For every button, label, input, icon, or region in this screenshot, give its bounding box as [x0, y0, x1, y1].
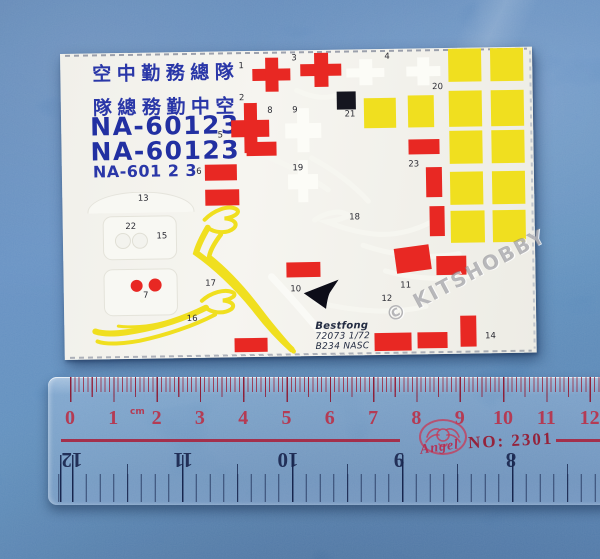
decal-number-label: 13 [138, 194, 149, 204]
decal-number-label: 17 [205, 279, 216, 289]
decal-number-label: 1 [238, 61, 244, 71]
ruler-cm-number: 12 [580, 407, 600, 430]
decal-number-label: 3 [291, 53, 297, 63]
ruler-cm-number: 3 [195, 407, 205, 430]
ruler-cm-number: 1 [108, 407, 118, 430]
ruler-cm-number: 6 [325, 407, 335, 430]
decal-number-label: 9 [292, 105, 298, 115]
decal-number-label: 20 [432, 82, 443, 92]
decal-number-label: 11 [400, 281, 411, 291]
ruler-cm-number: 5 [282, 407, 292, 430]
decal-number-label: 19 [292, 163, 303, 173]
ruler-cm-unit-label: cm [130, 407, 145, 417]
ruler-center-line-left [61, 439, 400, 442]
decal-number-label: 2 [239, 93, 245, 103]
decal-number-label: 15 [156, 231, 167, 241]
ruler-cm-number: 8 [411, 407, 421, 430]
decal-number-label: 18 [349, 212, 360, 222]
decal-number-label: 7 [143, 291, 149, 301]
maker-imprint: Bestfong 72073 1/72 B234 NASC [315, 321, 370, 352]
ruler-cm-ticks [70, 377, 600, 402]
ruler-cm-number: 7 [368, 407, 378, 430]
ruler-center-line-right [556, 439, 600, 442]
decal-number-labels: 1234567891011121314151617181920212223 [60, 47, 537, 360]
ruler-cm-number: 2 [152, 407, 162, 430]
maker-subject: B234 NASC [316, 341, 371, 352]
photo-scene: 空中勤務總隊 隊總務勤中空 NA-60123 NA-60123 NA-601 2… [0, 0, 600, 559]
decal-number-label: 14 [485, 331, 496, 341]
decal-number-label: 10 [290, 284, 301, 294]
ruler: cm 0123456789101112 12111098 Angel NO: 2… [48, 377, 600, 505]
decal-number-label: 23 [408, 159, 419, 169]
ruler-cm-number: 0 [65, 407, 75, 430]
decal-number-label: 16 [187, 314, 198, 324]
decal-number-label: 8 [267, 106, 273, 116]
ruler-cm-number: 4 [238, 407, 248, 430]
ruler-cm-number: 10 [493, 407, 513, 430]
ruler-inch-ticks [48, 455, 600, 502]
ruler-cm-number: 11 [537, 407, 556, 430]
decal-number-label: 21 [344, 109, 355, 119]
decal-number-label: 5 [218, 130, 224, 140]
decal-sheet: 空中勤務總隊 隊總務勤中空 NA-60123 NA-60123 NA-601 2… [60, 47, 537, 360]
ruler-model-number: NO: 2301 [468, 429, 554, 453]
decal-number-label: 4 [384, 52, 390, 62]
decal-number-label: 6 [196, 167, 202, 177]
decal-number-label: 22 [125, 222, 136, 232]
